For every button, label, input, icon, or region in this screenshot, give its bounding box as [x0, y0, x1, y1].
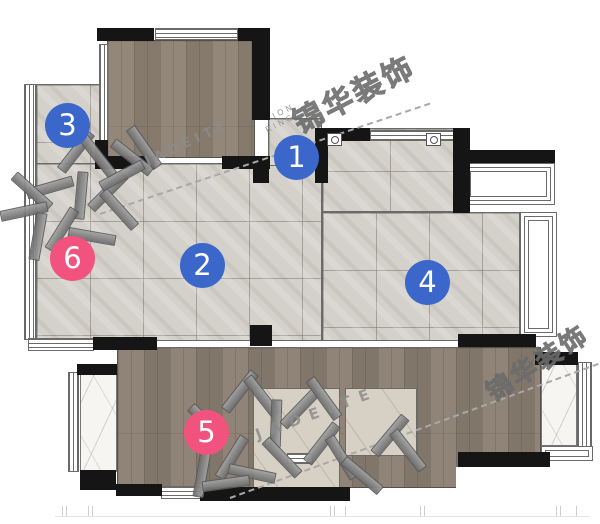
dimension-tick — [345, 506, 346, 516]
wall-segment — [252, 33, 270, 120]
dimension-line — [55, 516, 590, 517]
dimension-tick — [560, 506, 561, 516]
floor-balcony-left — [80, 372, 117, 472]
room-marker-1-label: 1 — [287, 143, 305, 172]
wall-segment — [458, 334, 536, 347]
wall-segment — [453, 128, 470, 213]
dimension-tick — [330, 506, 331, 516]
wall-thin-bottom-bedroom-top — [155, 340, 458, 348]
dimension-tick — [334, 506, 335, 516]
room-marker-3-label: 3 — [58, 111, 76, 140]
exterior-white-area — [456, 467, 542, 489]
dimension-tick — [424, 506, 425, 516]
fixture-switch-left — [327, 133, 342, 146]
wall-segment — [458, 452, 550, 467]
wall-segment — [250, 325, 272, 346]
bay-window-top-right — [462, 163, 555, 205]
window-bathroom-top — [370, 130, 454, 141]
room-marker-4-label: 4 — [418, 268, 436, 297]
wall-segment — [77, 364, 117, 375]
room-marker-5: 5 — [184, 410, 229, 455]
wall-segment — [460, 150, 555, 163]
wall-segment — [93, 337, 157, 350]
dimension-tick — [92, 506, 93, 516]
dimension-tick — [556, 506, 557, 516]
room-marker-2-label: 2 — [193, 251, 211, 280]
window-living-bottom — [28, 338, 94, 351]
fixture-switch-right — [426, 133, 441, 146]
wall-segment — [97, 28, 154, 41]
window-bedroom-top — [155, 28, 238, 40]
floor-plan: 锦华装饰 锦华装饰 JADEITE JADEITE ION RING 1 2 3… — [0, 0, 600, 524]
dimension-tick — [576, 506, 577, 516]
window-dining-right — [520, 212, 557, 337]
room-marker-6: 6 — [50, 236, 95, 281]
watermark-brand-cn-top: 锦华装饰 — [284, 42, 422, 141]
dimension-tick — [88, 506, 89, 516]
room-marker-4: 4 — [405, 260, 450, 305]
dimension-tick — [62, 506, 63, 516]
wall-segment — [80, 470, 116, 490]
dimension-tick — [420, 506, 421, 516]
room-marker-2: 2 — [180, 243, 225, 288]
wall-segment — [116, 484, 162, 496]
room-marker-6-label: 6 — [63, 244, 81, 273]
dimension-tick — [66, 506, 67, 516]
room-marker-1: 1 — [274, 135, 319, 180]
window-balcony-left — [68, 372, 79, 472]
room-marker-3: 3 — [45, 103, 90, 148]
room-marker-5-label: 5 — [197, 418, 215, 447]
